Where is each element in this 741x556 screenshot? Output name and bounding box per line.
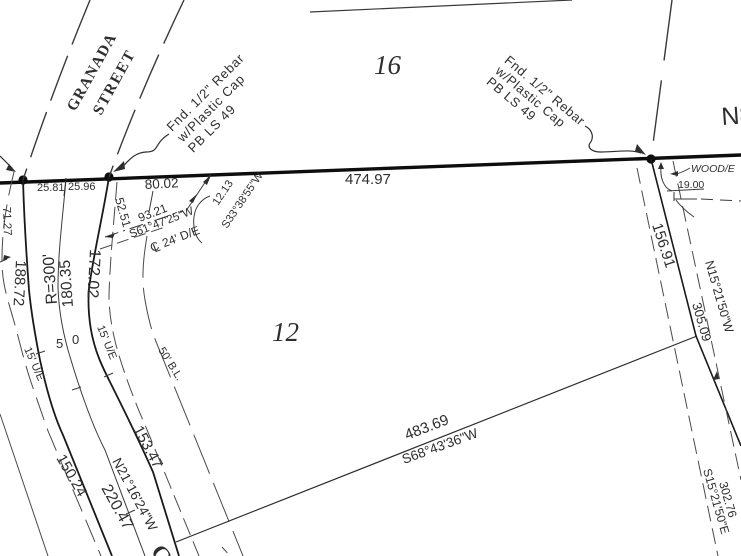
svg-text:25.96: 25.96 [68, 181, 96, 193]
svg-text:474.97: 474.97 [345, 171, 391, 188]
svg-text:188.72: 188.72 [10, 260, 29, 307]
svg-text:G: G [146, 540, 177, 556]
svg-text:N89: N89 [720, 100, 741, 131]
svg-text:0: 0 [72, 332, 79, 347]
svg-text:180.35: 180.35 [57, 259, 77, 307]
svg-text:153.47: 153.47 [129, 423, 166, 472]
svg-text:52.51: 52.51 [112, 196, 134, 229]
svg-text:71.27: 71.27 [0, 207, 13, 236]
svg-text:12: 12 [272, 317, 299, 347]
svg-text:25.81: 25.81 [37, 182, 65, 194]
svg-text:16: 16 [374, 50, 402, 80]
svg-text:WOOD/E: WOOD/E [691, 163, 736, 175]
svg-text:150.24: 150.24 [53, 452, 91, 500]
svg-text:80.02: 80.02 [144, 175, 179, 192]
svg-text:19.00: 19.00 [678, 179, 704, 191]
svg-text:15' U/E: 15' U/E [21, 345, 46, 383]
svg-text:5: 5 [56, 336, 63, 351]
svg-text:172.02: 172.02 [83, 249, 103, 299]
svg-text:12.13: 12.13 [211, 178, 236, 208]
